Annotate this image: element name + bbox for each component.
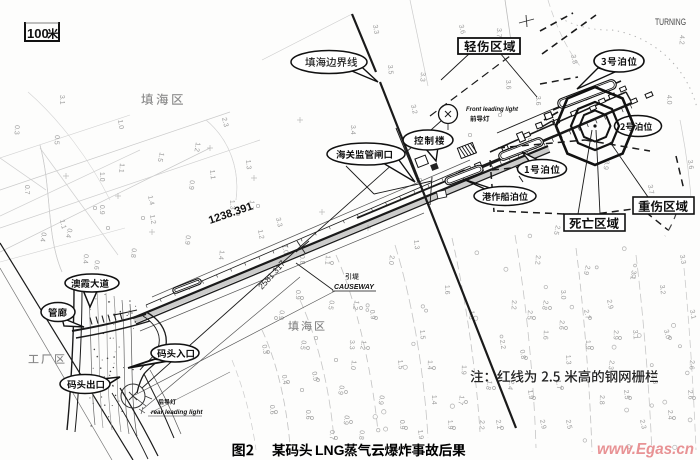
svg-text:1.9: 1.9 <box>416 429 424 440</box>
svg-text:1.0: 1.0 <box>116 119 124 130</box>
svg-text:1.7: 1.7 <box>456 395 465 406</box>
svg-text:3.7: 3.7 <box>495 28 502 38</box>
svg-text:0.9: 0.9 <box>342 415 350 426</box>
svg-text:2.1: 2.1 <box>494 419 503 430</box>
svg-text:1.6: 1.6 <box>541 330 549 340</box>
svg-text:1.0: 1.0 <box>98 172 105 182</box>
svg-text:3.1: 3.1 <box>688 309 697 320</box>
svg-text:0.6: 0.6 <box>92 260 100 270</box>
svg-text:3.1: 3.1 <box>58 95 65 105</box>
svg-text:0.4: 0.4 <box>64 228 73 239</box>
svg-text:1.5: 1.5 <box>418 330 426 340</box>
svg-text:0.5: 0.5 <box>53 135 60 145</box>
svg-text:1.4: 1.4 <box>217 250 225 261</box>
svg-text:3.3: 3.3 <box>274 217 283 228</box>
svg-text:1.3: 1.3 <box>564 355 572 365</box>
svg-text:2.2: 2.2 <box>498 339 506 350</box>
svg-text:LNG: LNG <box>315 442 345 458</box>
svg-text:1.2: 1.2 <box>256 229 265 240</box>
svg-text:1.0: 1.0 <box>349 360 357 371</box>
svg-text:0.6: 0.6 <box>304 410 311 420</box>
svg-text:2.0: 2.0 <box>387 255 395 265</box>
svg-text:2.5: 2.5 <box>564 419 573 430</box>
svg-text:1.1: 1.1 <box>323 255 331 265</box>
svg-text:2.2: 2.2 <box>478 420 485 430</box>
svg-text:3.7: 3.7 <box>646 184 655 195</box>
svg-text:1.5: 1.5 <box>396 360 404 370</box>
svg-text:2.8: 2.8 <box>598 395 605 405</box>
svg-text:0.9: 0.9 <box>183 235 191 245</box>
svg-text:3.3: 3.3 <box>371 24 380 35</box>
svg-text:2.9: 2.9 <box>582 265 591 276</box>
svg-text:0.4: 0.4 <box>38 232 47 243</box>
svg-text:4.0: 4.0 <box>665 95 672 105</box>
svg-text:0.7: 0.7 <box>328 430 335 440</box>
svg-text:3.6: 3.6 <box>534 96 541 106</box>
svg-text:2.3: 2.3 <box>220 117 229 128</box>
svg-text:CAUSEWAY: CAUSEWAY <box>334 284 375 291</box>
svg-text:0.9: 0.9 <box>377 395 385 406</box>
svg-text:2.2: 2.2 <box>533 255 541 265</box>
svg-text:0.3: 0.3 <box>13 125 20 135</box>
svg-text:0.9: 0.9 <box>294 290 301 300</box>
svg-text:2.9: 2.9 <box>538 419 547 430</box>
svg-text:1.9: 1.9 <box>526 389 534 400</box>
svg-text:3.0: 3.0 <box>662 329 671 340</box>
svg-text:0.7: 0.7 <box>23 185 30 195</box>
svg-text:0.9: 0.9 <box>277 310 285 321</box>
svg-text:TURNING: TURNING <box>655 17 686 27</box>
svg-text:3.8: 3.8 <box>569 54 578 65</box>
svg-text:0.5: 0.5 <box>310 371 319 382</box>
svg-text:1.5: 1.5 <box>156 152 165 163</box>
svg-text:3.1: 3.1 <box>628 270 637 281</box>
svg-text:0.5: 0.5 <box>298 340 307 351</box>
svg-text:1.2: 1.2 <box>358 340 367 351</box>
svg-text:3.0: 3.0 <box>559 290 566 300</box>
svg-text:1.4: 1.4 <box>146 195 155 206</box>
svg-text:2.5: 2.5 <box>525 310 533 320</box>
svg-text:2.3: 2.3 <box>638 419 647 430</box>
svg-text:3.2: 3.2 <box>658 284 666 294</box>
svg-text:3.5: 3.5 <box>386 65 394 75</box>
svg-text:4.2: 4.2 <box>678 35 685 45</box>
svg-text:1.3: 1.3 <box>244 160 252 170</box>
svg-text:1.6: 1.6 <box>443 285 450 295</box>
svg-text:2.2: 2.2 <box>510 300 517 310</box>
svg-text:2.7: 2.7 <box>582 309 591 320</box>
svg-text:3.3: 3.3 <box>678 254 687 265</box>
svg-text:1.9: 1.9 <box>584 340 591 350</box>
svg-text:0.6: 0.6 <box>268 405 276 415</box>
svg-text:0.8: 0.8 <box>357 430 365 440</box>
svg-text:3.2: 3.2 <box>409 104 418 115</box>
svg-text:3.3: 3.3 <box>348 340 355 350</box>
svg-text:0.8: 0.8 <box>129 248 137 258</box>
svg-text:rear leading light: rear leading light <box>151 409 203 416</box>
svg-text:2.8: 2.8 <box>540 300 549 311</box>
svg-text:2.3: 2.3 <box>607 360 615 371</box>
svg-text:2.5: 2.5 <box>552 225 561 236</box>
svg-text:1.4: 1.4 <box>426 360 433 370</box>
svg-text:1.9: 1.9 <box>460 365 467 375</box>
svg-text:www.Egas.cn: www.Egas.cn <box>597 441 694 458</box>
svg-text:1.1: 1.1 <box>58 219 67 230</box>
svg-text:1.1: 1.1 <box>208 169 216 179</box>
svg-text:3.6: 3.6 <box>457 24 466 35</box>
svg-text:0.8: 0.8 <box>518 349 526 360</box>
svg-text:1.8: 1.8 <box>484 380 493 391</box>
svg-text:0.9: 0.9 <box>336 385 345 396</box>
svg-text:2.6: 2.6 <box>557 320 565 330</box>
svg-text:2.9: 2.9 <box>605 299 614 310</box>
svg-text:0.5: 0.5 <box>326 300 335 311</box>
svg-text:1.2: 1.2 <box>351 300 360 311</box>
svg-text:1.2: 1.2 <box>192 142 200 153</box>
svg-text:3.3: 3.3 <box>418 72 426 82</box>
svg-text:0.4: 0.4 <box>81 254 89 264</box>
svg-text:2.9: 2.9 <box>612 330 619 340</box>
svg-text:1.3: 1.3 <box>412 239 420 249</box>
svg-text:Front leading light: Front leading light <box>466 106 519 113</box>
svg-text:2.3: 2.3 <box>650 374 658 385</box>
svg-text:0.9: 0.9 <box>98 205 105 215</box>
svg-text:1.1: 1.1 <box>117 163 125 173</box>
svg-text:1.2: 1.2 <box>148 214 157 225</box>
svg-text:0.9: 0.9 <box>187 180 195 190</box>
svg-text:100: 100 <box>27 26 49 41</box>
svg-text:3.4: 3.4 <box>349 125 356 135</box>
svg-text:2.5: 2.5 <box>622 389 630 399</box>
svg-text:2.6: 2.6 <box>688 360 695 370</box>
svg-text:3.6: 3.6 <box>504 80 512 90</box>
svg-text:3.6: 3.6 <box>686 159 694 170</box>
svg-text:1.4: 1.4 <box>430 395 437 405</box>
